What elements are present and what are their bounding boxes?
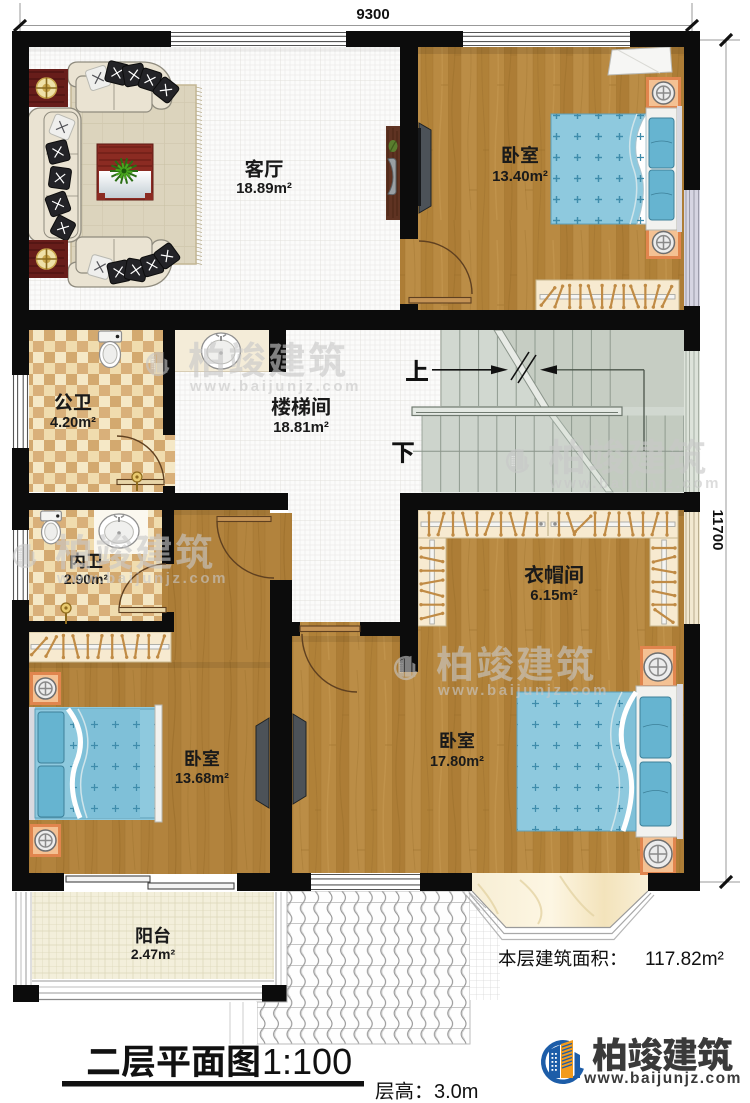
svg-text:3.0m: 3.0m xyxy=(434,1081,478,1103)
svg-text:9300: 9300 xyxy=(356,6,389,23)
svg-text:1:100: 1:100 xyxy=(262,1041,352,1082)
svg-text:117.82m²: 117.82m² xyxy=(645,949,724,970)
svg-text:18.81m²: 18.81m² xyxy=(273,419,329,436)
svg-text:13.68m²: 13.68m² xyxy=(175,771,229,787)
svg-text:4.20m²: 4.20m² xyxy=(50,415,96,431)
svg-text:www.baijunjz.com: www.baijunjz.com xyxy=(437,682,609,699)
svg-text:www.baijunjz.com: www.baijunjz.com xyxy=(583,1070,742,1087)
svg-text:11700: 11700 xyxy=(709,510,726,551)
svg-text:17.80m²: 17.80m² xyxy=(430,754,484,770)
svg-text:www.baijunjz.com: www.baijunjz.com xyxy=(189,378,361,395)
svg-text:13.40m²: 13.40m² xyxy=(492,168,548,185)
svg-text:www.baijunjz.com: www.baijunjz.com xyxy=(56,570,228,587)
svg-text:www.baijunjz.com: www.baijunjz.com xyxy=(549,475,721,492)
svg-text:2.47m²: 2.47m² xyxy=(131,946,176,962)
svg-text:6.15m²: 6.15m² xyxy=(530,587,578,604)
svg-text:18.89m²: 18.89m² xyxy=(236,180,292,197)
